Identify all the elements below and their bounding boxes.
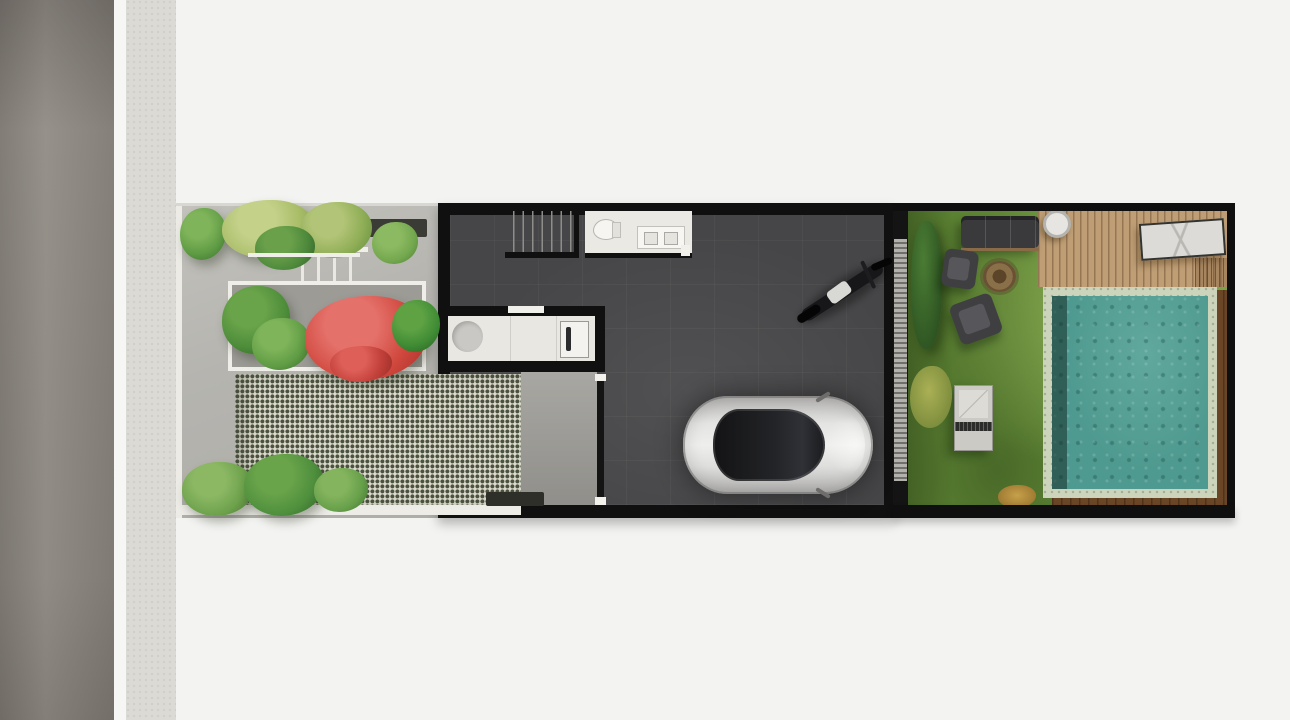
toilet xyxy=(593,219,619,240)
driveway-strip xyxy=(521,372,597,505)
garden-bench-table xyxy=(954,385,993,451)
sun-lounger xyxy=(1139,218,1226,261)
swimming-pool xyxy=(1043,287,1217,498)
louver-slats xyxy=(894,239,907,481)
bathroom xyxy=(585,211,692,258)
north-boundary-line xyxy=(176,203,438,206)
car-hood-highlight xyxy=(823,414,865,476)
front-boundary-wall xyxy=(176,203,182,518)
round-deck-table xyxy=(1043,210,1071,238)
planter-edge xyxy=(248,253,360,257)
edge-planter xyxy=(486,492,544,506)
rear-wall-south xyxy=(893,505,1235,518)
pool-water xyxy=(1052,296,1208,489)
road xyxy=(0,0,114,720)
sidewalk xyxy=(126,0,176,720)
kitchen-door-opening xyxy=(508,306,544,313)
outdoor-sofa xyxy=(961,216,1039,248)
hedge xyxy=(911,221,942,349)
vanity-sink xyxy=(637,226,685,249)
kitchen-sink xyxy=(452,321,483,352)
staircase xyxy=(505,211,579,258)
motorcycle-top-view xyxy=(783,252,903,330)
bathroom-door xyxy=(681,245,690,256)
rear-wall-north xyxy=(893,203,1235,211)
louver-wall xyxy=(893,203,908,518)
lounge-chair xyxy=(941,248,980,290)
road-edge-line xyxy=(114,0,126,720)
site-plan-render xyxy=(0,0,1290,720)
car-top-view xyxy=(683,396,873,494)
cooktop xyxy=(560,321,589,358)
fire-pit xyxy=(983,261,1016,292)
rear-wall-east xyxy=(1227,203,1235,518)
garage-gate xyxy=(597,374,604,505)
car-glass-roof xyxy=(713,409,825,481)
deck-inlay xyxy=(1195,258,1227,287)
sofa-cushion-seams xyxy=(961,216,1039,248)
